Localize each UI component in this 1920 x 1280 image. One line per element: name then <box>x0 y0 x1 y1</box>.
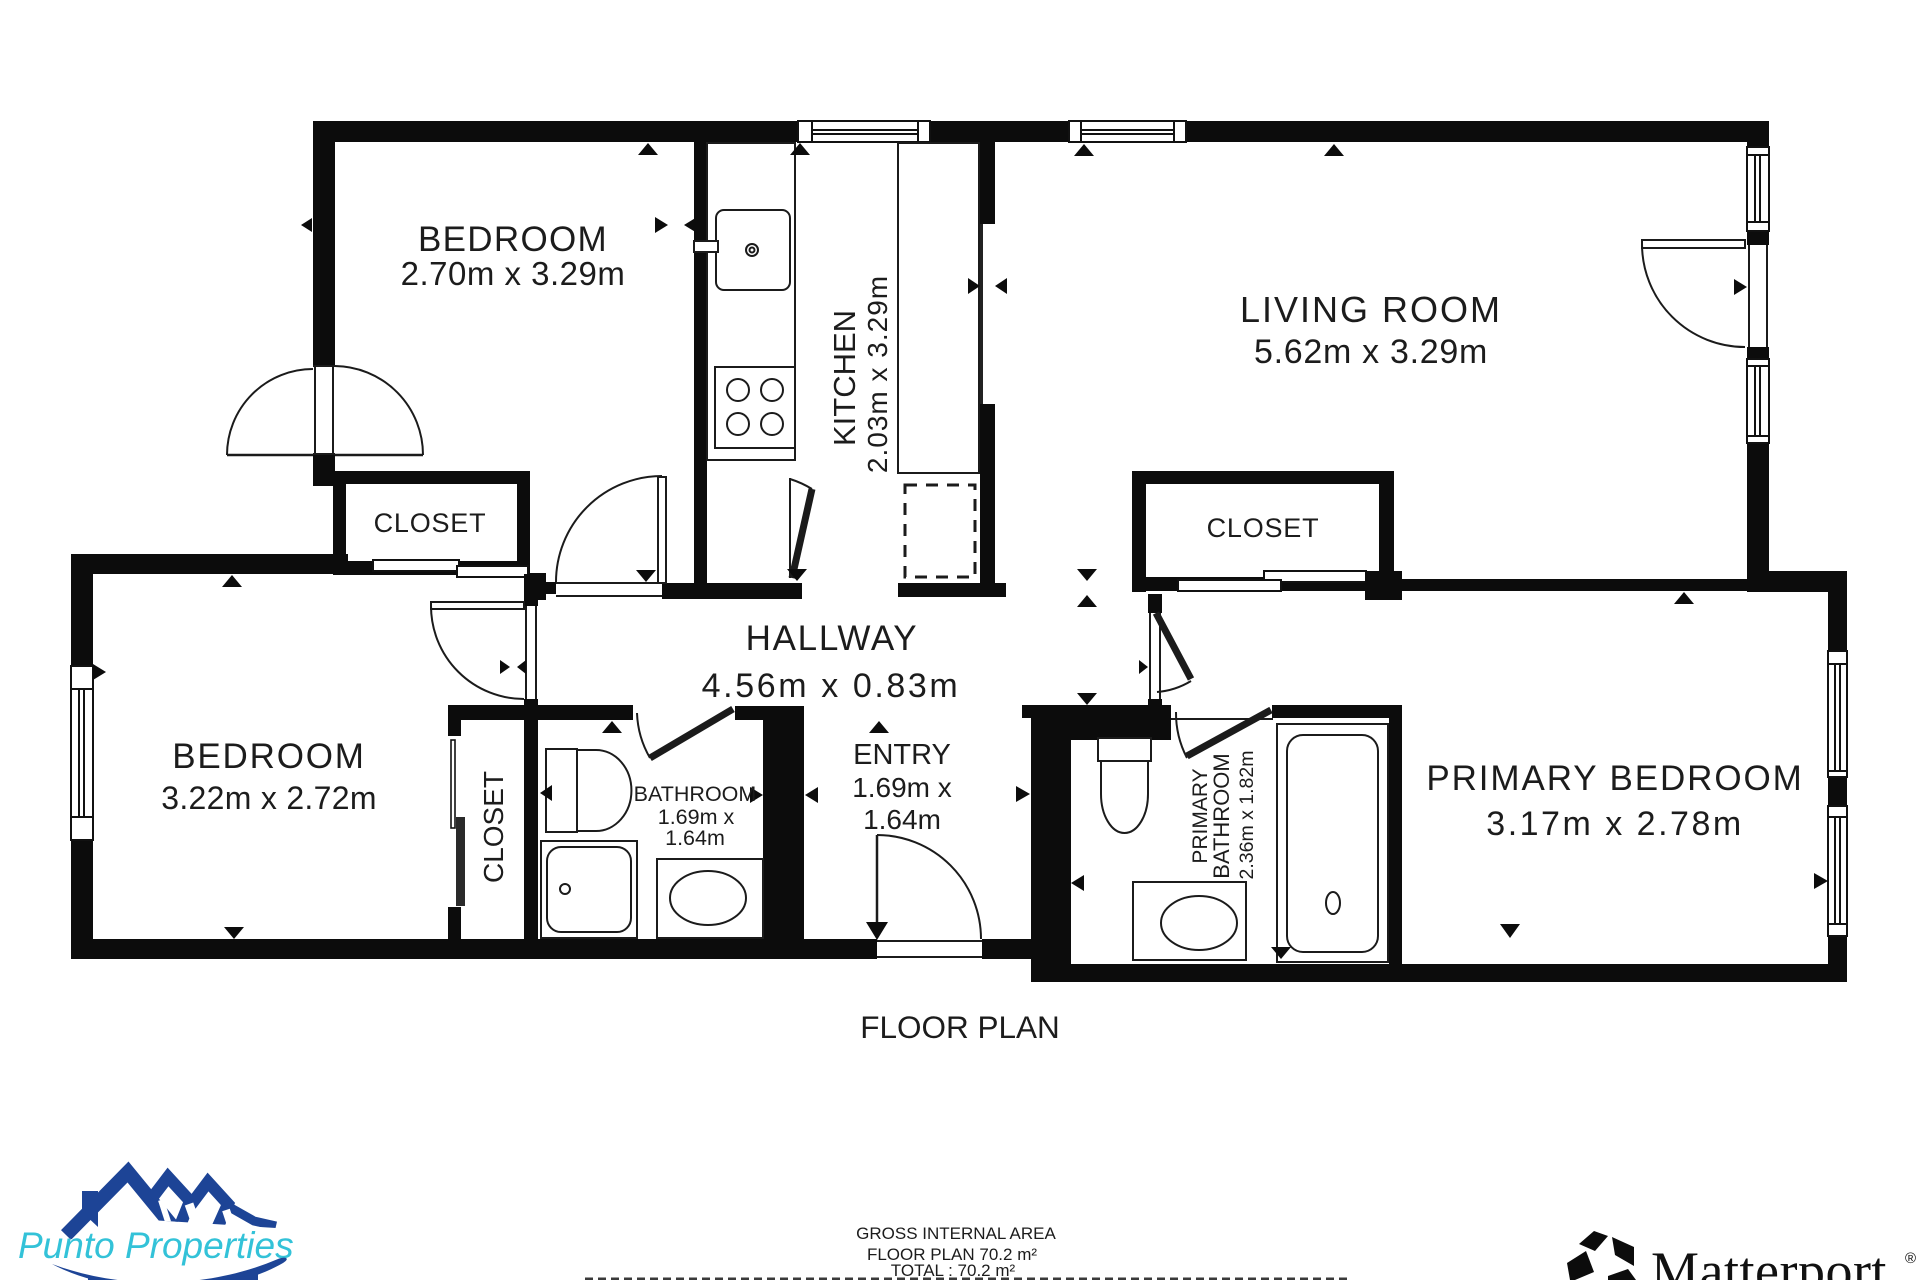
svg-text:®: ® <box>1905 1250 1916 1267</box>
svg-text:1.64m: 1.64m <box>665 826 725 850</box>
svg-text:GROSS INTERNAL AREA: GROSS INTERNAL AREA <box>856 1224 1056 1243</box>
svg-text:CLOSET: CLOSET <box>1207 513 1320 543</box>
svg-text:FLOOR PLAN: FLOOR PLAN <box>860 1009 1060 1045</box>
svg-text:2.36m x 1.82m: 2.36m x 1.82m <box>1236 751 1258 880</box>
svg-text:2.03m x 3.29m: 2.03m x 3.29m <box>862 275 893 473</box>
svg-text:BATHROOM: BATHROOM <box>1209 753 1234 878</box>
svg-text:5.62m x 3.29m: 5.62m x 3.29m <box>1254 333 1488 371</box>
svg-text:LIVING ROOM: LIVING ROOM <box>1240 289 1502 330</box>
svg-text:1.64m: 1.64m <box>863 804 941 835</box>
svg-text:TOTAL : 70.2 m²: TOTAL : 70.2 m² <box>891 1261 1016 1280</box>
svg-text:Matterport: Matterport <box>1651 1241 1887 1280</box>
svg-text:BATHROOM: BATHROOM <box>634 782 757 806</box>
svg-text:4.56m x 0.83m: 4.56m x 0.83m <box>702 667 961 705</box>
svg-text:KITCHEN: KITCHEN <box>827 310 862 446</box>
svg-text:BEDROOM: BEDROOM <box>418 220 608 259</box>
svg-text:BEDROOM: BEDROOM <box>172 737 365 776</box>
svg-text:ENTRY: ENTRY <box>853 739 951 771</box>
svg-text:3.22m x 2.72m: 3.22m x 2.72m <box>161 780 377 816</box>
svg-text:Punto Properties: Punto Properties <box>18 1225 294 1266</box>
svg-text:HALLWAY: HALLWAY <box>746 619 919 658</box>
svg-text:1.69m x: 1.69m x <box>852 772 952 803</box>
svg-text:CLOSET: CLOSET <box>374 508 487 538</box>
svg-text:CLOSET: CLOSET <box>478 771 509 883</box>
svg-text:PRIMARY BEDROOM: PRIMARY BEDROOM <box>1426 759 1803 798</box>
svg-text:3.17m x 2.78m: 3.17m x 2.78m <box>1486 805 1743 843</box>
svg-text:2.70m x 3.29m: 2.70m x 3.29m <box>401 255 626 292</box>
